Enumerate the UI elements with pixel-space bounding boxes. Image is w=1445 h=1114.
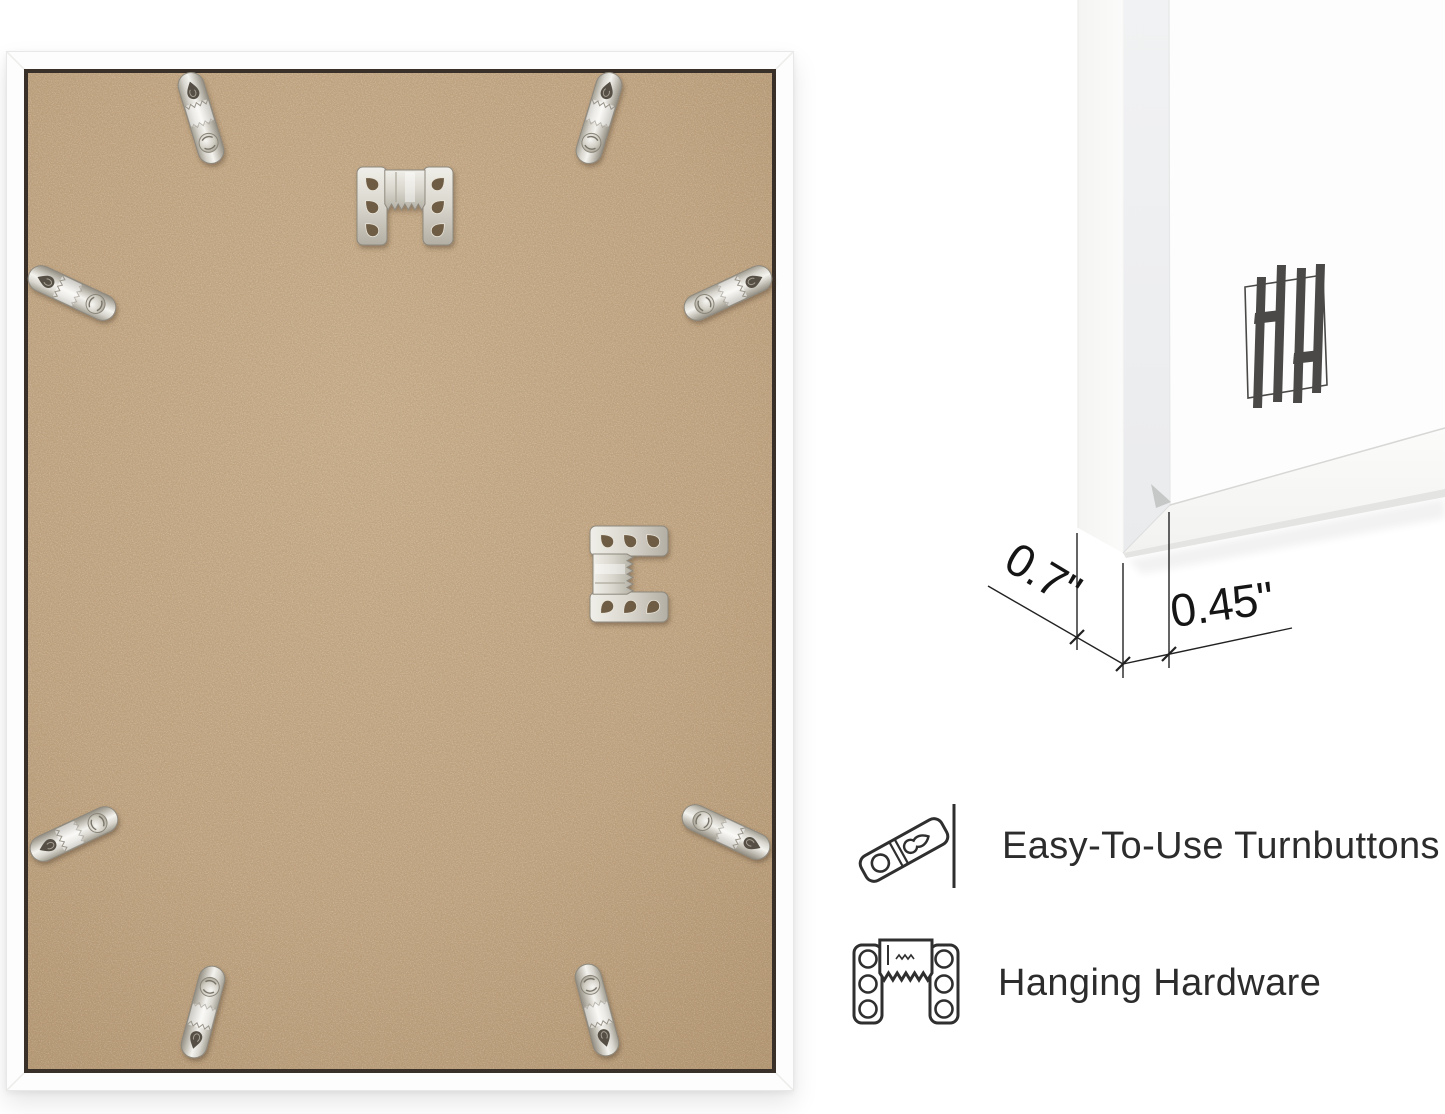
width-dimension-label: 0.45" <box>1167 571 1277 637</box>
depth-dimension-label: 0.7" <box>996 532 1090 617</box>
feature-hanging-hardware: Hanging Hardware <box>852 936 1321 1030</box>
feature-turnbuttons: Easy-To-Use Turnbuttons <box>852 800 1440 892</box>
turnbutton-icon <box>852 800 964 892</box>
product-infographic: 0.7" 0.45" Easy-To-Use Turnbuttons <box>0 0 1445 1114</box>
hanging-hardware-icon <box>852 937 960 1029</box>
feature-label-hanging-hardware: Hanging Hardware <box>998 962 1321 1005</box>
frame-corner-closeup: 0.7" 0.45" <box>960 0 1445 700</box>
feature-label-turnbuttons: Easy-To-Use Turnbuttons <box>1002 825 1440 868</box>
frame-back-photo <box>6 51 794 1091</box>
mdf-backing-board <box>28 73 772 1069</box>
art-area <box>1169 0 1445 505</box>
